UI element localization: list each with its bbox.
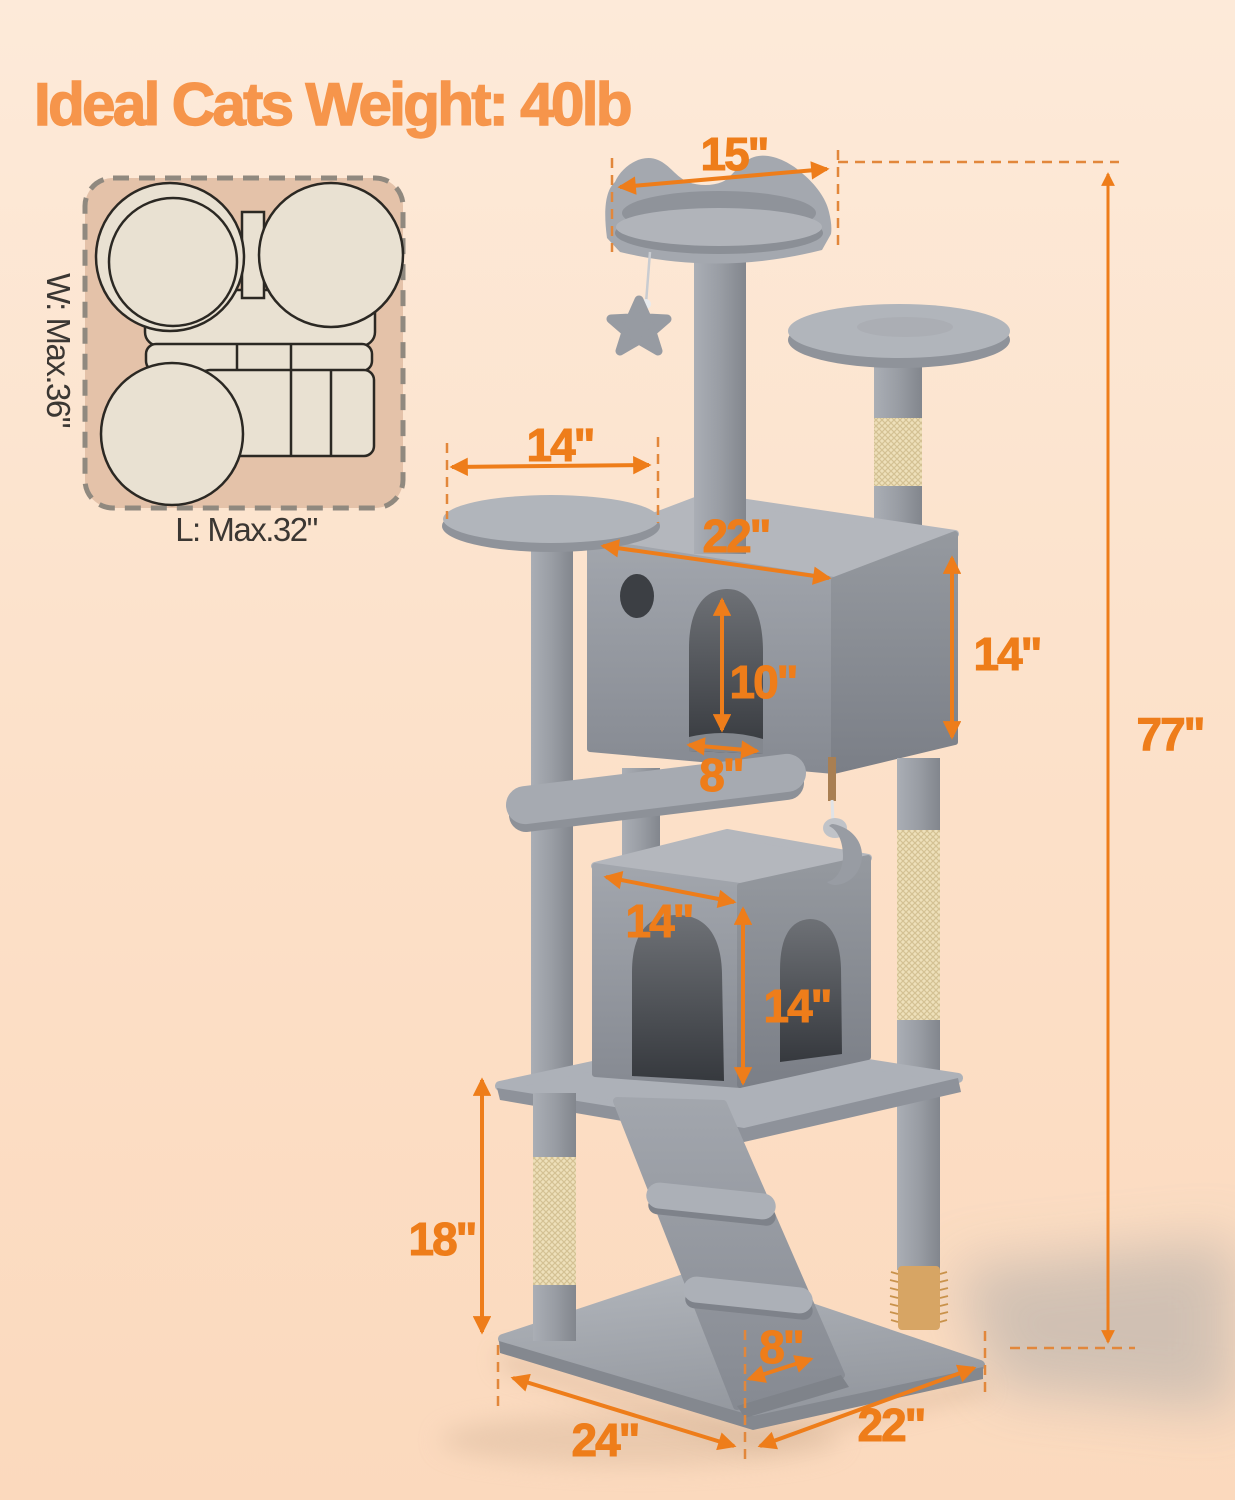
svg-text:18": 18" [409, 1213, 476, 1265]
svg-text:15": 15" [701, 128, 768, 180]
svg-text:22": 22" [858, 1399, 925, 1451]
svg-text:14": 14" [764, 980, 831, 1032]
svg-text:L: Max.32": L: Max.32" [175, 511, 317, 548]
svg-text:8": 8" [699, 749, 742, 801]
svg-text:22": 22" [703, 510, 770, 562]
svg-text:W: Max.36": W: Max.36" [40, 273, 77, 428]
svg-text:77": 77" [1137, 708, 1204, 760]
svg-text:14": 14" [626, 895, 693, 947]
svg-text:14": 14" [974, 628, 1041, 680]
svg-text:14": 14" [527, 419, 594, 471]
svg-text:Ideal Cats Weight: 40lb: Ideal Cats Weight: 40lb [34, 71, 631, 138]
svg-text:8": 8" [759, 1321, 802, 1373]
svg-text:24": 24" [572, 1414, 639, 1466]
svg-text:10": 10" [730, 656, 797, 708]
